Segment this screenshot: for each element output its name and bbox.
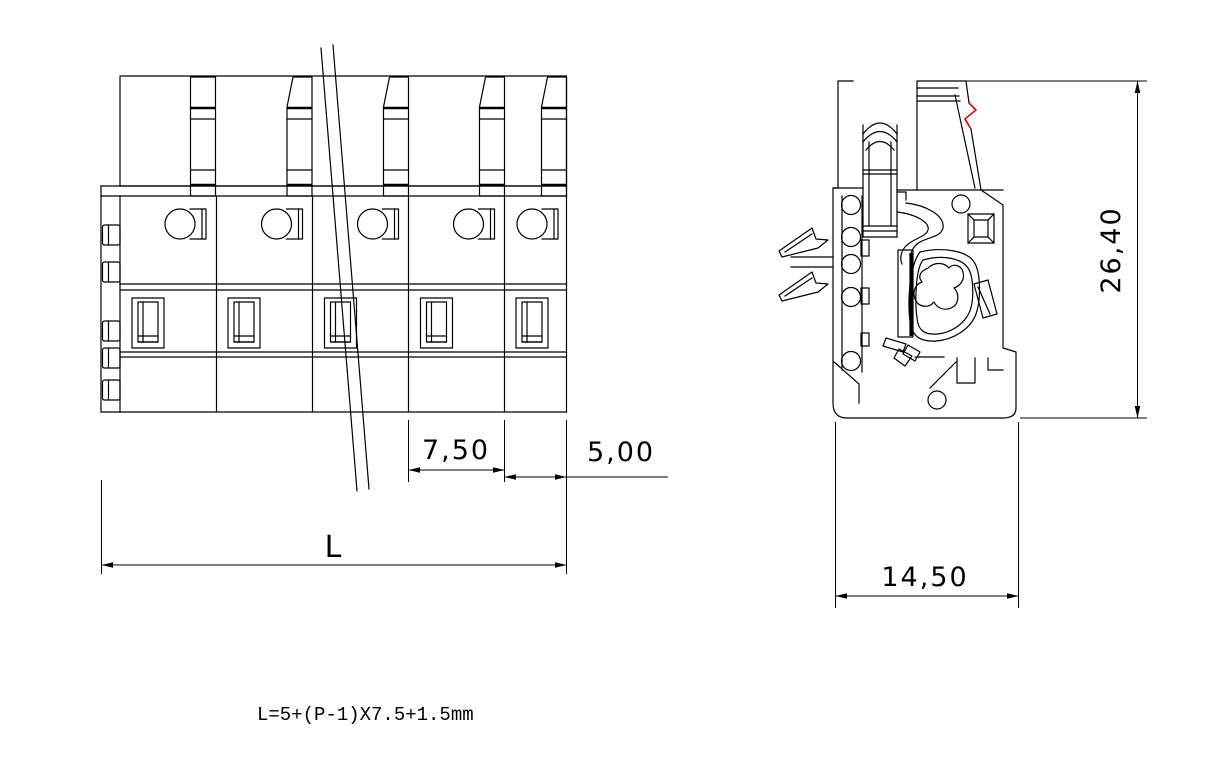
side-view <box>779 81 1016 418</box>
dimension-pitch: 7,50 <box>409 420 505 482</box>
terminal-block-drawing: 7,50 5,00 L <box>0 0 1221 768</box>
wire-port <box>517 209 558 239</box>
wire-guide-darts <box>779 228 833 301</box>
side-left-column <box>834 196 869 404</box>
inserted-wire <box>321 45 369 491</box>
dim-pitch-label: 7,50 <box>422 435 490 466</box>
dim-end-width-label: 5,00 <box>587 437 655 468</box>
right-side-details <box>952 195 997 318</box>
push-button <box>191 77 216 196</box>
wire-port <box>262 209 303 239</box>
highlight-edge <box>965 103 976 129</box>
test-window <box>228 298 260 348</box>
bottom-details <box>915 357 1003 409</box>
dimension-depth: 14,50 <box>836 422 1019 608</box>
dimension-height: 26,40 <box>966 81 1147 418</box>
front-lower-body <box>101 186 567 412</box>
wire-port <box>358 209 399 239</box>
side-dimensions: 26,40 14,50 <box>836 81 1148 608</box>
side-latch-tabs <box>103 225 121 400</box>
side-plunger <box>863 123 897 237</box>
dimension-total-length: L <box>102 480 567 574</box>
test-windows <box>132 298 548 348</box>
technical-drawing-canvas: 7,50 5,00 L <box>0 0 1221 768</box>
push-button <box>480 77 505 196</box>
test-window <box>516 298 548 348</box>
dim-height-label: 26,40 <box>1096 206 1127 293</box>
dimension-end-width: 5,00 <box>505 420 669 574</box>
dim-depth-label: 14,50 <box>881 562 968 593</box>
side-lever <box>917 88 975 188</box>
wire-port <box>454 209 495 239</box>
wire-funnel-channel <box>897 192 943 264</box>
dim-length-label: L <box>325 530 342 565</box>
push-button <box>542 77 567 196</box>
front-view <box>101 45 567 491</box>
push-button <box>287 77 312 196</box>
formula-notes: L=5+(P-1)X7.5+1.5mm P=2P-24P <box>257 640 474 768</box>
test-window <box>325 298 357 348</box>
push-buttons <box>191 77 567 196</box>
push-button <box>384 77 409 196</box>
test-window <box>132 298 164 348</box>
test-window <box>421 298 453 348</box>
front-dimensions: 7,50 5,00 L <box>102 420 669 574</box>
wire-ports <box>165 209 558 239</box>
wire-port <box>165 209 206 239</box>
length-formula: L=5+(P-1)X7.5+1.5mm <box>257 700 474 730</box>
